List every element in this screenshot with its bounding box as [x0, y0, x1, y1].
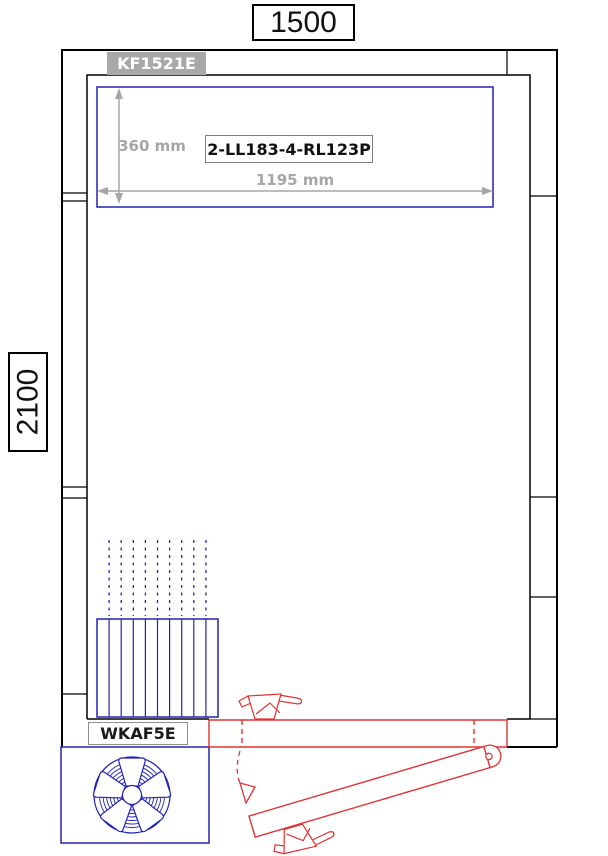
- door-handle-closed: [239, 694, 302, 719]
- width-dim-label: 1195 mm: [255, 171, 335, 189]
- fan-unit-model-tag: WKAF5E: [88, 722, 188, 745]
- fan-icon: [93, 757, 172, 833]
- depth-dim-label: 360 mm: [120, 137, 184, 155]
- door-closed: [209, 719, 507, 747]
- fan-unit-housing: [61, 747, 209, 843]
- overall-width-value: 1500: [270, 6, 337, 40]
- door-open: [249, 742, 511, 856]
- ceiling-unit-model-tag: KF1521E: [107, 52, 206, 75]
- overall-height-dimension: 2100: [8, 352, 48, 452]
- evaporator-coil: [97, 619, 218, 717]
- door-swing-arrow-icon: [237, 751, 255, 803]
- airflow-dashes: [109, 540, 206, 616]
- overall-width-dimension: 1500: [252, 4, 355, 41]
- part-number-label: 2-LL183-4-RL123P: [205, 135, 373, 163]
- cold-room-plan-drawing: 1500 2100 KF1521E 360 mm 2-LL183-4-RL123…: [0, 0, 608, 856]
- overall-height-value: 2100: [11, 369, 45, 436]
